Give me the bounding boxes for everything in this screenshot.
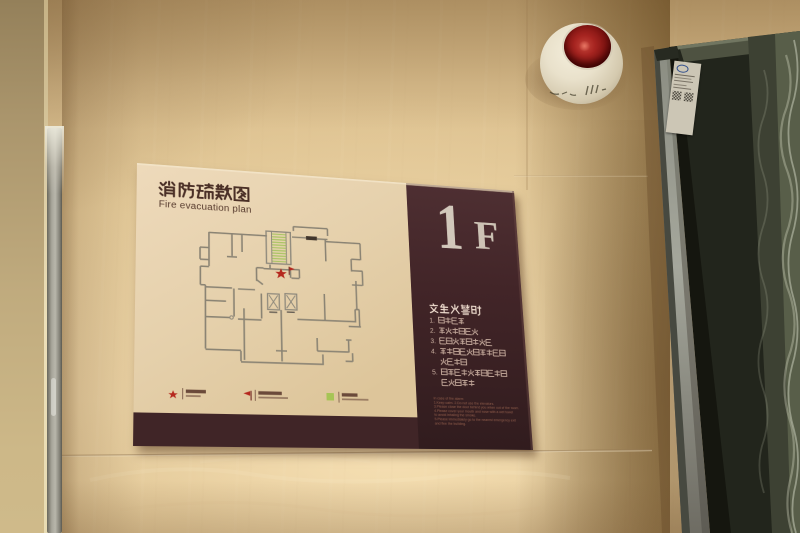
svg-text:2.: 2. bbox=[430, 328, 436, 335]
svg-text:F: F bbox=[473, 213, 500, 259]
svg-text:1: 1 bbox=[434, 191, 465, 265]
svg-text:5.: 5. bbox=[432, 369, 438, 376]
svg-text:and flee the building.: and flee the building. bbox=[435, 421, 466, 425]
svg-text:1.: 1. bbox=[429, 318, 435, 325]
svg-text:3.: 3. bbox=[430, 338, 436, 345]
svg-text:4.: 4. bbox=[431, 349, 437, 356]
